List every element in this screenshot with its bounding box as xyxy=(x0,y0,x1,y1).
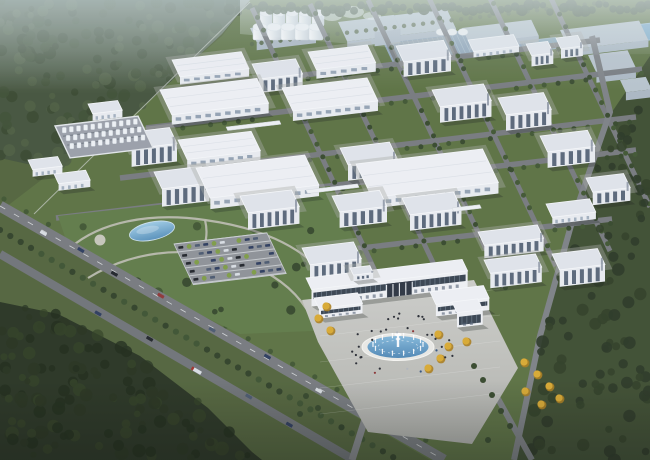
industrial-park-aerial-rendering xyxy=(0,0,650,460)
scene-canvas xyxy=(0,0,650,460)
atmosphere xyxy=(0,0,650,460)
